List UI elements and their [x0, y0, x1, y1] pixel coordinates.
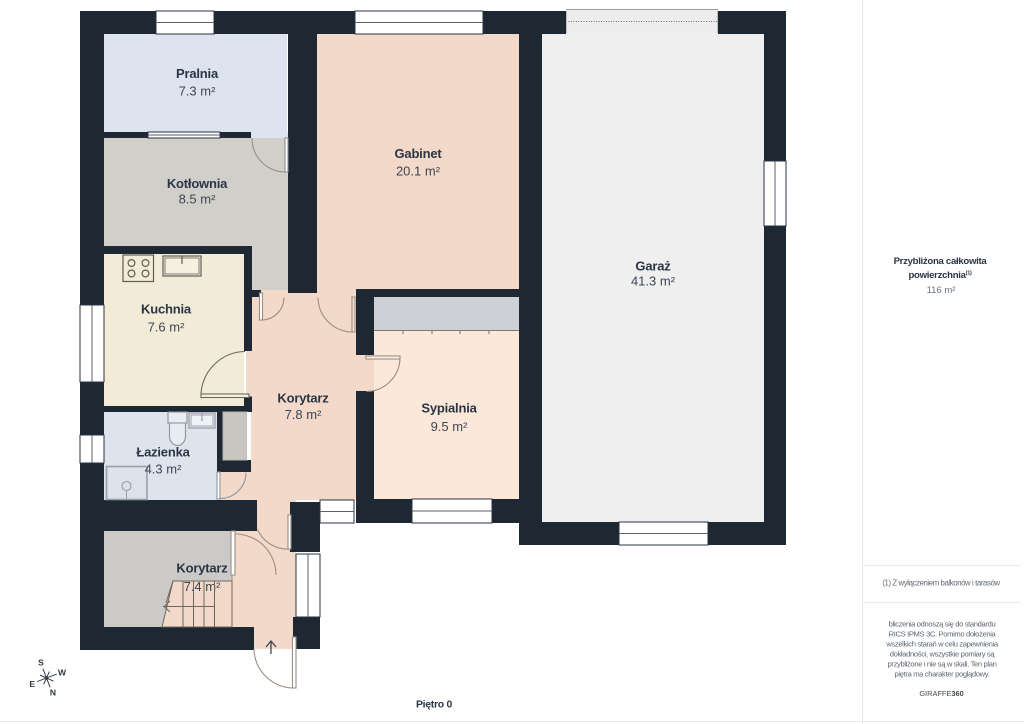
svg-text:9.5 m²: 9.5 m²: [431, 419, 469, 434]
svg-text:GIRAFFE360: GIRAFFE360: [919, 689, 963, 698]
svg-text:bliczenia odnoszą się do stand: bliczenia odnoszą się do standardu: [889, 620, 996, 629]
svg-text:7.6 m²: 7.6 m²: [148, 320, 186, 335]
svg-text:41.3 m²: 41.3 m²: [631, 274, 676, 289]
svg-text:Przybliżona całkowita: Przybliżona całkowita: [894, 256, 988, 267]
svg-text:S: S: [38, 658, 44, 668]
svg-text:piętra ma charakter poglądowy.: piętra ma charakter poglądowy.: [895, 670, 990, 679]
svg-text:Pralnia: Pralnia: [176, 66, 219, 81]
svg-text:Garaż: Garaż: [635, 259, 671, 274]
svg-text:Piętro 0: Piętro 0: [416, 699, 453, 711]
svg-text:Kotłownia: Kotłownia: [167, 176, 228, 191]
svg-text:E: E: [29, 679, 35, 689]
svg-text:Korytarz: Korytarz: [277, 391, 329, 406]
svg-text:RICS IPMS 3C. Pomimo dołożenia: RICS IPMS 3C. Pomimo dołożenia: [889, 630, 997, 639]
svg-text:Kuchnia: Kuchnia: [141, 302, 192, 317]
svg-text:116 m²: 116 m²: [927, 285, 956, 296]
svg-text:Łazienka: Łazienka: [136, 445, 190, 460]
svg-text:Gabinet: Gabinet: [395, 146, 443, 161]
svg-text:N: N: [50, 688, 56, 698]
svg-text:4.3 m²: 4.3 m²: [145, 462, 183, 477]
svg-text:7.3 m²: 7.3 m²: [179, 84, 217, 99]
svg-text:przybliżone i nie są w skali.: przybliżone i nie są w skali. Ten plan: [888, 660, 997, 669]
svg-text:wszelkich starań w celu zapewn: wszelkich starań w celu zapewnienia: [885, 640, 999, 649]
svg-text:Korytarz: Korytarz: [176, 561, 228, 576]
svg-text:powierzchnia(1): powierzchnia(1): [909, 270, 972, 281]
svg-text:20.1 m²: 20.1 m²: [396, 164, 441, 179]
svg-text:(1) Z wyłączeniem balkonów i t: (1) Z wyłączeniem balkonów i tarasów: [882, 579, 1000, 588]
svg-text:Sypialnia: Sypialnia: [421, 401, 477, 416]
svg-text:7.8 m²: 7.8 m²: [285, 407, 323, 422]
svg-text:dokładności, wszystkie pomiary: dokładności, wszystkie pomiary są: [890, 650, 996, 659]
svg-text:8.5 m²: 8.5 m²: [179, 192, 217, 207]
svg-text:W: W: [58, 668, 67, 678]
